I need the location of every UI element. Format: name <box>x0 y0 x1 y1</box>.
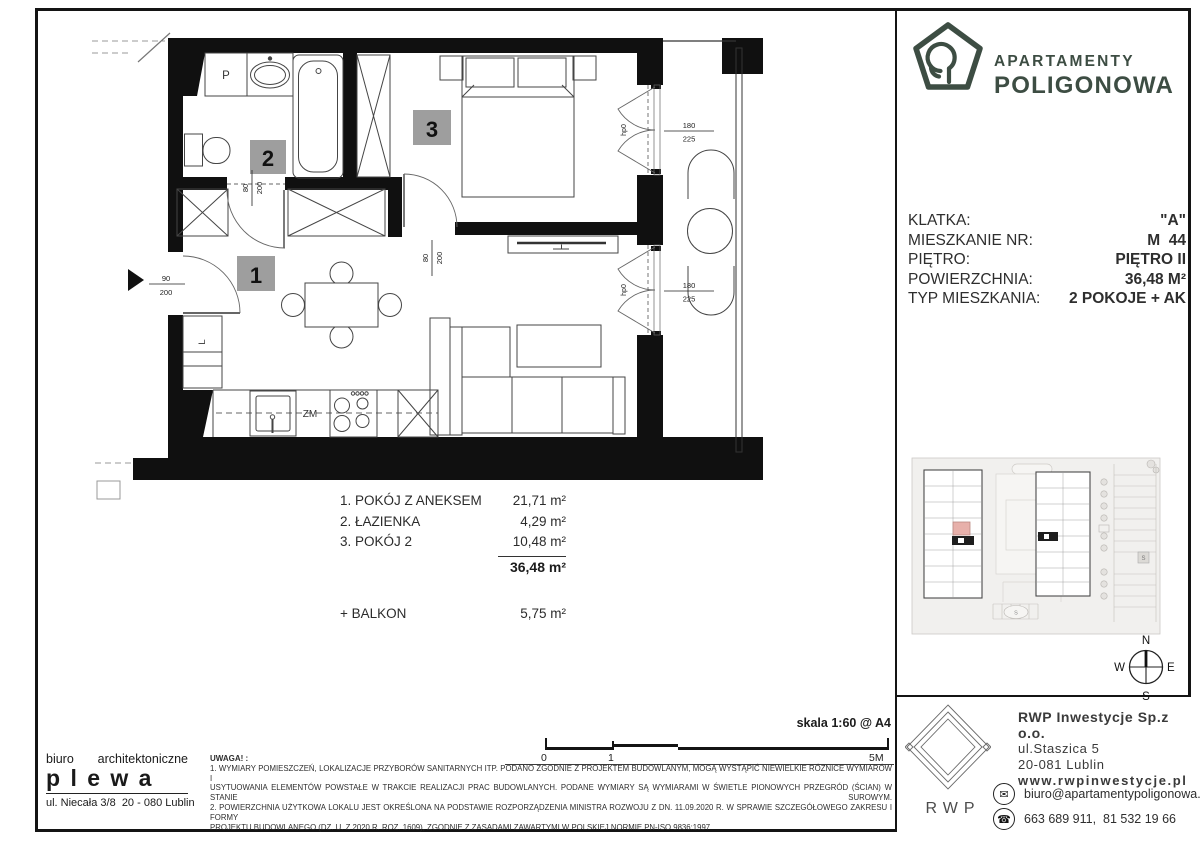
info-row-pietro: PIĘTRO: PIĘTRO II <box>908 250 1186 270</box>
room-name: 1. POKÓJ Z ANEKSEM <box>340 491 482 512</box>
info-label: TYP MIESZKANIA: <box>908 289 1040 309</box>
developer-street: ul.Staszica 5 <box>1018 741 1200 757</box>
developer-name: RWP Inwestycje Sp.z o.o. <box>1018 709 1200 741</box>
compass-e: E <box>1167 662 1175 674</box>
logo-line-2: POLIGONOWA <box>994 72 1174 100</box>
toilet-bowl <box>203 138 230 164</box>
svg-text:225: 225 <box>683 135 696 144</box>
info-value: 36,48 M² <box>1125 270 1186 290</box>
svg-text:80: 80 <box>241 184 250 192</box>
dimensions: 90 200 80 200 80 200 180 225 hp0 <box>128 121 714 304</box>
info-row-typ: TYP MIESZKANIA: 2 POKOJE + AK <box>908 289 1186 309</box>
balcony-row: + BALKON 5,75 m² <box>340 606 566 621</box>
notes-block: UWAGA! : 1. WYMIARY POMIESZCZEŃ, LOKALIZ… <box>210 754 892 832</box>
sill-label: hp0 <box>621 124 628 136</box>
reference-marks <box>92 33 170 499</box>
svg-text:180: 180 <box>683 281 696 290</box>
svg-text:200: 200 <box>435 252 444 265</box>
architect-block: biuro architektoniczne p l e w a ul. Nie… <box>46 752 188 809</box>
site-plan: S S <box>908 452 1166 644</box>
building-a <box>924 470 982 598</box>
entry-dimension: 90 200 <box>128 269 185 297</box>
info-value: M 44 <box>1147 231 1186 251</box>
developer-block: RWP Inwestycje Sp.z o.o. ul.Staszica 5 2… <box>1018 709 1200 789</box>
room-area: 21,71 m² <box>513 491 566 512</box>
phone-row: ☎ 663 689 911, 81 532 19 66 <box>993 808 1176 830</box>
rwp-logo-text: RWP <box>905 800 996 818</box>
info-row-mieszkanie: MIESZKANIE NR: M 44 <box>908 231 1186 251</box>
washer-label: P <box>222 70 230 82</box>
shaft <box>183 390 213 437</box>
compass-s: S <box>1142 691 1150 703</box>
frame-top <box>35 8 1191 11</box>
room-badge-3-label: 3 <box>426 117 438 142</box>
notes-line: 1. WYMIARY POMIESZCZEŃ, LOKALIZACJE PRZY… <box>210 764 892 784</box>
room-area: 10,48 m² <box>513 532 566 553</box>
balcony-door-dimension: 180 225 hp0 <box>621 121 714 144</box>
north-needle <box>1145 651 1148 668</box>
developer-city: 20-081 Lublin <box>1018 757 1200 773</box>
balcony-railing <box>663 41 742 452</box>
room-row: 2. ŁAZIENKA 4,29 m² <box>340 512 566 533</box>
info-value: PIĘTRO II <box>1115 250 1186 270</box>
bathroom-door-dimension: 80 200 <box>241 170 264 206</box>
logo: APARTAMENTY POLIGONOWA <box>994 53 1174 100</box>
floor-plan: 2 3 1 P ZM L 90 200 80 200 <box>85 20 775 500</box>
balcony-door-dimension: 180 225 hp0 <box>621 281 714 304</box>
svg-text:180: 180 <box>683 121 696 130</box>
fridge <box>183 316 222 388</box>
notes-line: PROJEKTU BUDOWLANEGO (DZ. U. Z 2020 R. R… <box>210 823 892 833</box>
svg-text:90: 90 <box>162 274 170 283</box>
entrance-door <box>183 256 240 313</box>
info-label: PIĘTRO: <box>908 250 970 270</box>
balcony-area: 5,75 m² <box>520 606 566 621</box>
balcony-chair <box>688 266 734 315</box>
info-label: POWIERZCHNIA: <box>908 270 1033 290</box>
notes-heading: UWAGA! : <box>210 754 892 764</box>
email-row: ✉ biuro@apartamentypoligonowa.pl <box>993 783 1200 805</box>
info-label: KLATKA: <box>908 211 971 231</box>
svg-text:80: 80 <box>421 254 430 262</box>
compass-n: N <box>1142 635 1150 647</box>
room-row: 3. POKÓJ 2 10,48 m² <box>340 532 566 553</box>
parking-marker: S <box>1141 556 1145 562</box>
architect-name: p l e w a <box>46 765 188 794</box>
building-b <box>1036 472 1090 596</box>
room-area-list: 1. POKÓJ Z ANEKSEM 21,71 m² 2. ŁAZIENKA … <box>340 491 566 621</box>
room-badge-1-label: 1 <box>250 263 262 288</box>
room-row: 1. POKÓJ Z ANEKSEM 21,71 m² <box>340 491 566 512</box>
room-area: 4,29 m² <box>520 512 566 533</box>
developer-email: biuro@apartamentypoligonowa.pl <box>1024 787 1200 801</box>
plan-sheet: APARTAMENTY POLIGONOWA KLATKA: "A" MIESZ… <box>0 0 1200 849</box>
svg-text:200: 200 <box>255 182 264 195</box>
frame-left <box>35 8 38 832</box>
room-name: 2. ŁAZIENKA <box>340 512 420 533</box>
apartment-info-table: KLATKA: "A" MIESZKANIE NR: M 44 PIĘTRO: … <box>908 211 1186 309</box>
info-label: MIESZKANIE NR: <box>908 231 1033 251</box>
architect-word2: architektoniczne <box>98 752 188 766</box>
coffee-table <box>517 325 601 367</box>
dishwasher-label: ZM <box>303 409 317 420</box>
compass-w: W <box>1114 662 1125 674</box>
hall-closet <box>177 189 228 236</box>
developer-phones: 663 689 911, 81 532 19 66 <box>1024 812 1176 826</box>
balcony-chair <box>688 150 734 199</box>
bed <box>440 56 596 197</box>
envelope-icon: ✉ <box>993 783 1015 805</box>
room-badge-2-label: 2 <box>262 146 274 171</box>
bedroom-door-dimension: 80 200 <box>421 240 444 276</box>
toilet-tank <box>185 134 203 166</box>
info-row-klatka: KLATKA: "A" <box>908 211 1186 231</box>
balcony-label: + BALKON <box>340 606 406 621</box>
info-row-powierzchnia: POWIERZCHNIA: 36,48 M² <box>908 270 1186 290</box>
total-area: 36,48 m² <box>340 559 566 575</box>
compass-rose: N S W E <box>1102 627 1190 705</box>
info-value: "A" <box>1160 211 1186 231</box>
notes-line: 2. POWIERZCHNIA UŻYTKOWA LOKALU JEST OKR… <box>210 803 892 823</box>
entrance-marker: S <box>1014 611 1018 617</box>
frame-right <box>1188 8 1191 697</box>
pentagon-logo-icon <box>910 20 986 106</box>
architect-line1: biuro architektoniczne <box>46 752 188 766</box>
appliance-labels: P ZM L <box>197 70 317 420</box>
notes-line: USYTUOWANIA ELEMENTÓW POWSTAŁE W TRAKCIE… <box>210 783 892 803</box>
dining-table <box>305 283 378 327</box>
wardrobe <box>357 55 390 177</box>
sofa <box>430 318 625 435</box>
scale-title: skala 1:60 @ A4 <box>535 716 891 730</box>
balcony-table <box>688 209 733 254</box>
architect-address: ul. Niecała 3/8 20 - 080 Lublin <box>46 797 188 809</box>
rwp-logo-icon <box>905 701 991 793</box>
entrance-arrow-icon <box>128 269 144 291</box>
shaft <box>183 53 205 96</box>
sill-label: hp0 <box>621 284 628 296</box>
hall-closet <box>288 189 385 236</box>
svg-text:225: 225 <box>683 295 696 304</box>
fridge-label: L <box>197 339 208 344</box>
room-name: 3. POKÓJ 2 <box>340 532 412 553</box>
logo-line-1: APARTAMENTY <box>994 53 1174 71</box>
total-divider <box>498 556 566 557</box>
walls <box>133 38 763 480</box>
svg-text:200: 200 <box>160 288 173 297</box>
info-value: 2 POKOJE + AK <box>1069 289 1186 309</box>
phone-icon: ☎ <box>993 808 1015 830</box>
bedroom-door <box>404 174 457 227</box>
column-divider <box>895 8 897 832</box>
architect-word1: biuro <box>46 752 74 766</box>
tv-dresser <box>508 236 618 253</box>
highlighted-unit <box>953 522 970 535</box>
